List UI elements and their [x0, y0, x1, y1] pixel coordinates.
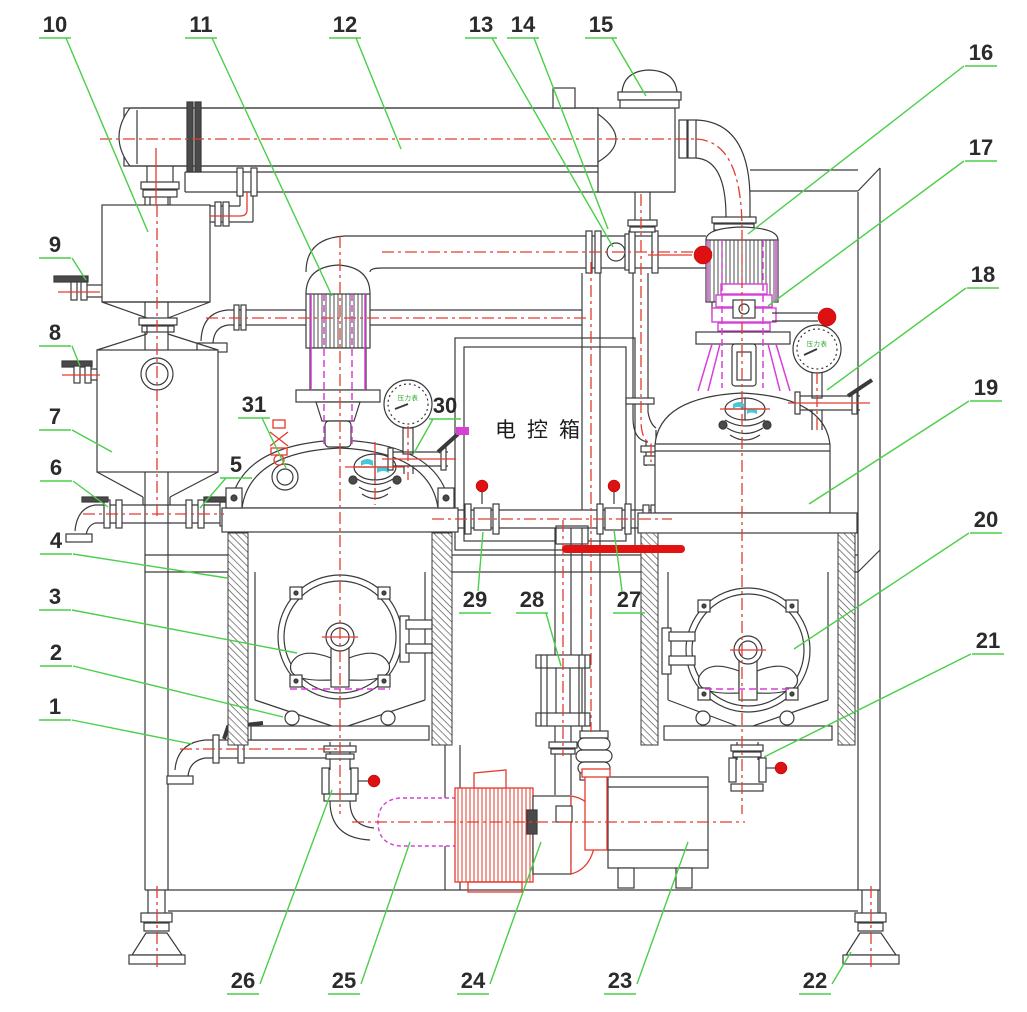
callout-number: 16: [969, 40, 993, 65]
callout-16: 16: [748, 40, 997, 234]
leader-line: [73, 554, 227, 578]
ball-handle: [775, 762, 787, 774]
callout-8: 8: [39, 320, 80, 366]
pump-motor: [455, 770, 533, 892]
leader-line: [361, 842, 410, 984]
callout-number: 21: [976, 628, 1000, 653]
leader-line: [809, 401, 969, 504]
leader-line: [212, 38, 332, 296]
callout-number: 4: [50, 528, 63, 553]
callout-number: 5: [230, 452, 242, 477]
callout-9: 9: [39, 232, 86, 280]
callout-number: 25: [332, 968, 356, 993]
leader-line: [72, 720, 192, 744]
leader-line: [260, 790, 332, 984]
callout-number: 20: [974, 507, 998, 532]
leader-line: [827, 288, 966, 390]
leader-line: [73, 481, 108, 507]
ball-handle: [694, 246, 712, 264]
callout-number: 13: [469, 12, 493, 37]
callout-number: 14: [511, 12, 536, 37]
callout-number: 31: [242, 392, 266, 417]
horizontal-condenser: [119, 88, 598, 172]
callout-number: 18: [971, 262, 995, 287]
callout-1: 1: [39, 694, 192, 744]
callout-number: 30: [433, 393, 457, 418]
callout-number: 9: [49, 232, 61, 257]
ball-handle: [476, 480, 488, 492]
callout-number: 12: [333, 12, 357, 37]
callout-19: 19: [809, 375, 1002, 504]
callout-number: 17: [969, 135, 993, 160]
callout-number: 6: [50, 455, 62, 480]
ball-handle: [818, 308, 836, 326]
callout-number: 3: [49, 584, 61, 609]
right-tank-outlet-valve: [729, 742, 776, 791]
callout-number: 19: [974, 375, 998, 400]
gauge-left-label: 压力表: [398, 393, 419, 402]
callout-number: 10: [43, 12, 67, 37]
stirrer-motor-column: [296, 265, 380, 447]
vent-nub: [553, 88, 575, 108]
callout-number: 8: [49, 320, 61, 345]
pump-inlet: [582, 769, 610, 850]
callout-number: 24: [461, 968, 486, 993]
buffer-hopper: [54, 205, 210, 332]
highlight-bar: [562, 545, 685, 553]
valve-9: [54, 276, 102, 300]
callout-number: 15: [589, 12, 613, 37]
callout-28: 28: [516, 587, 561, 666]
callout-25: 25: [328, 842, 410, 994]
leader-line: [832, 952, 851, 984]
leader-line: [794, 533, 969, 649]
callout-26: 26: [227, 790, 332, 994]
callout-number: 2: [50, 640, 62, 665]
process-equipment-diagram: 电控箱 压力表 压力表 1234567891011121314151617181…: [0, 0, 1027, 1012]
ball-handle: [368, 775, 380, 787]
callout-number: 1: [49, 694, 61, 719]
leader-line: [72, 610, 297, 653]
gauge-right-label: 压力表: [807, 339, 828, 348]
callout-number: 26: [231, 968, 255, 993]
ball-handle: [608, 480, 620, 492]
condensate-receiver: [598, 70, 756, 230]
control-box-label: 电控箱: [495, 418, 591, 442]
motor-box: [608, 777, 708, 888]
diagram-page: 电控箱 压力表 压力表 1234567891011121314151617181…: [0, 0, 1027, 1012]
callout-number: 23: [608, 968, 632, 993]
callout-number: 22: [803, 968, 827, 993]
callout-17: 17: [768, 135, 997, 306]
leader-line: [748, 66, 964, 234]
callout-number: 28: [520, 587, 544, 612]
callout-18: 18: [827, 262, 999, 390]
intermediate-tank: [62, 325, 230, 542]
leader-line: [73, 666, 283, 717]
callout-number: 29: [463, 587, 487, 612]
pump-group: [378, 769, 708, 892]
left-tank-outlet-valve: [322, 742, 374, 840]
callout-number: 7: [49, 404, 61, 429]
valve-magenta-tip: [456, 427, 469, 435]
bottom-valve-cross: [66, 497, 230, 542]
callout-number: 11: [189, 12, 212, 37]
callout-number: 27: [617, 587, 641, 612]
